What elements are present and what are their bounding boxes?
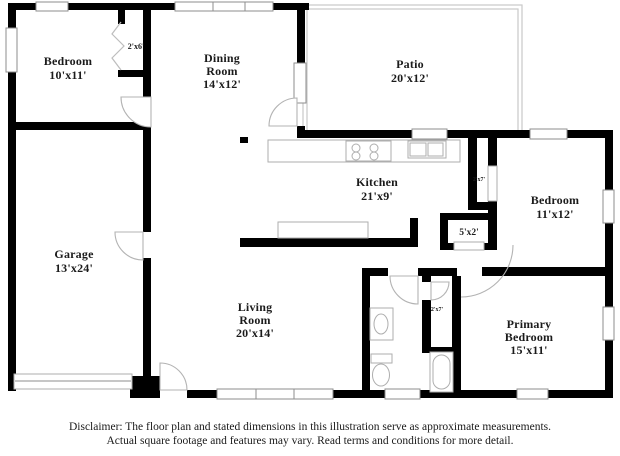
bifold-door-5x2-closet <box>454 242 484 250</box>
patio-door-arc <box>269 98 297 126</box>
garage-entry-door-arc <box>115 232 143 260</box>
room-dims-bedroom-right: 11'x12' <box>536 207 573 221</box>
room-label-living-2: Room <box>239 313 270 327</box>
room-dims-bedroom-top: 10'x11' <box>49 68 86 82</box>
floor-plan-image: Bedroom 10'x11' Dining Room 14'x12' Pati… <box>0 0 620 456</box>
bifold-door-2x6 <box>112 22 124 70</box>
toilet-icon <box>371 354 392 386</box>
room-label-patio: Patio <box>396 57 424 71</box>
room-dims-primary: 15'x11' <box>510 343 547 357</box>
bifold-door-bedroom2-closet <box>488 166 497 201</box>
bathroom-sink-icon <box>370 308 393 340</box>
room-label-living-1: Living <box>238 300 273 314</box>
island-counter <box>278 222 368 238</box>
disclaimer-line-2: Actual square footage and features may v… <box>0 434 620 448</box>
room-label-kitchen: Kitchen <box>356 175 398 189</box>
front-door-arc <box>160 363 187 390</box>
disclaimer-text: Disclaimer: The floor plan and stated di… <box>0 420 620 448</box>
room-dims-kitchen: 21'x9' <box>361 189 393 203</box>
kitchen-sink-icon <box>408 141 446 158</box>
room-dims-garage: 13'x24' <box>55 261 93 275</box>
closet-label-5x2: 5'x2' <box>459 228 479 238</box>
room-dims-living: 20'x14' <box>236 326 274 340</box>
bath2-door-arc <box>431 282 449 300</box>
bathroom-door-arc <box>390 276 418 304</box>
room-label-dining-2: Room <box>206 64 237 78</box>
floor-plan-svg: Bedroom 10'x11' Dining Room 14'x12' Pati… <box>0 0 620 415</box>
room-label-garage: Garage <box>54 247 94 261</box>
stove-icon <box>346 141 391 161</box>
room-label-bedroom-right: Bedroom <box>531 193 580 207</box>
room-dims-patio: 20'x12' <box>391 71 429 85</box>
closet-label-2x7-kitchen: 2'x7' <box>473 177 486 183</box>
room-dims-dining: 14'x12' <box>203 77 241 91</box>
closet-label-2x6: 2'x6' <box>128 42 144 51</box>
bathtub-icon <box>430 352 453 392</box>
room-label-dining-1: Dining <box>204 51 240 65</box>
room-label-bedroom-top: Bedroom <box>44 54 93 68</box>
closet-label-2x7-hall: 2'x7' <box>431 307 444 313</box>
room-label-primary-2: Bedroom <box>505 330 554 344</box>
disclaimer-line-1: Disclaimer: The floor plan and stated di… <box>0 420 620 434</box>
room-label-primary-1: Primary <box>507 317 552 331</box>
garage-door <box>14 374 132 389</box>
